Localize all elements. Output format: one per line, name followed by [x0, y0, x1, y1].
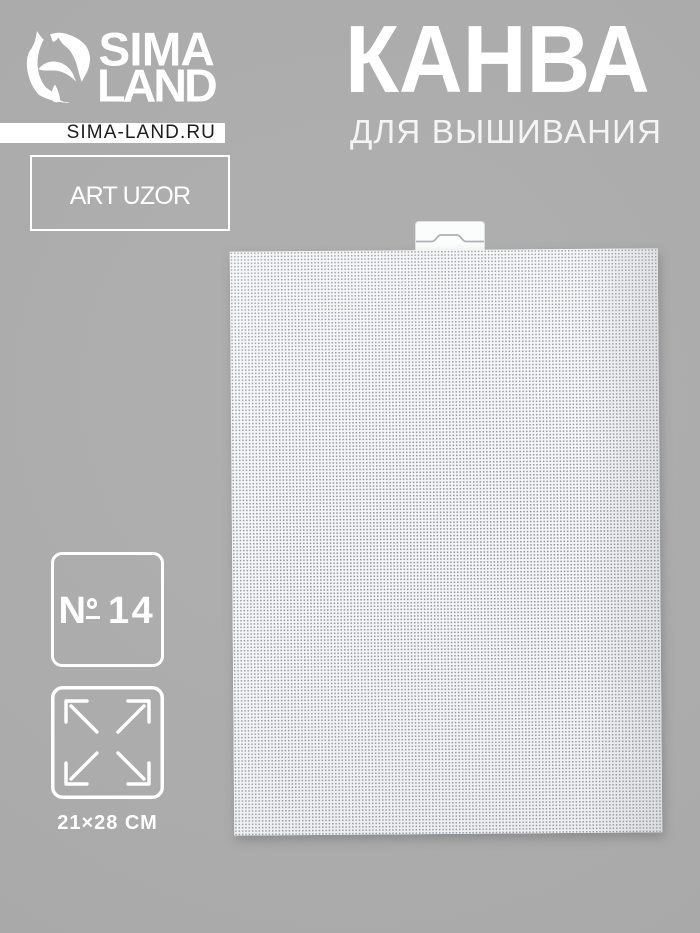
- svg-text:LAND: LAND: [97, 59, 216, 111]
